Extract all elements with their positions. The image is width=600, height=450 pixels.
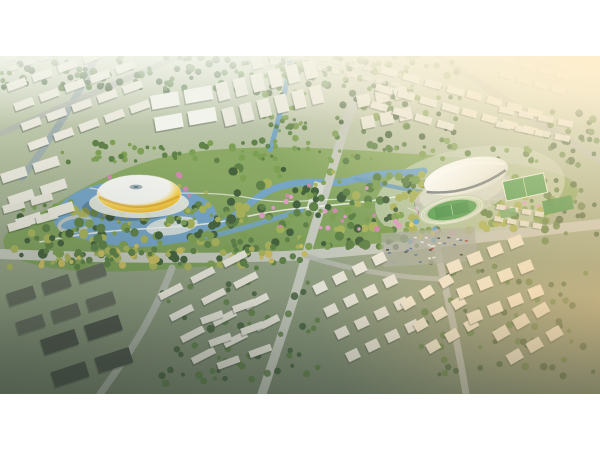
bottom-shading	[0, 56, 600, 394]
render-canvas	[0, 56, 600, 394]
atmosphere	[0, 56, 600, 394]
aerial-render	[0, 56, 600, 394]
page	[0, 0, 600, 450]
